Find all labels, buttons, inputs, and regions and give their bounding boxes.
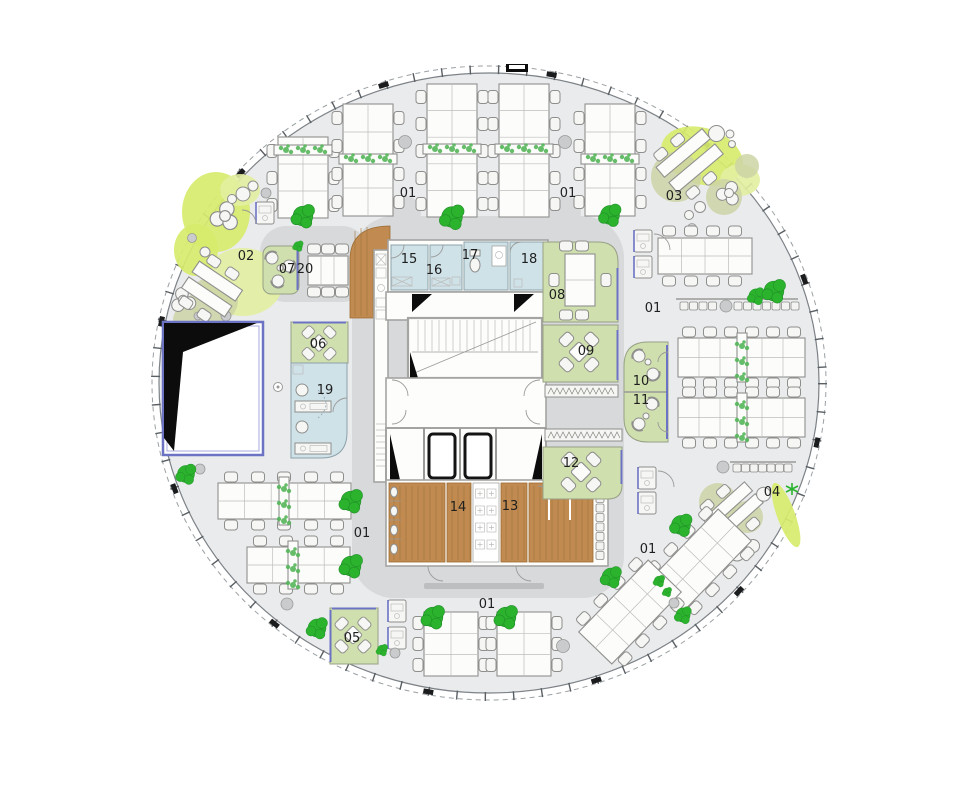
coat-rack — [545, 429, 622, 441]
sink-block — [473, 483, 499, 562]
room-label-13: 13 — [502, 499, 519, 514]
open-office-north — [267, 84, 646, 218]
room-19 — [291, 363, 347, 458]
room-label-18: 18 — [521, 252, 538, 267]
printer-station — [388, 600, 406, 658]
room-label-15: 15 — [401, 252, 418, 267]
room-label-07: 07 — [279, 262, 296, 277]
elevator-car — [465, 434, 491, 478]
stair-core — [386, 292, 546, 378]
desk-bench — [247, 536, 350, 594]
open-office-label-4: 01 — [479, 597, 496, 612]
open-office-label-3: 01 — [354, 526, 371, 541]
room-label-02: 02 — [238, 249, 255, 264]
room-label-05: 05 — [344, 631, 361, 646]
room-label-10: 10 — [633, 374, 650, 389]
open-office-label-0: 01 — [400, 186, 417, 201]
room-label-12: 12 — [563, 456, 580, 471]
desk-bench — [574, 104, 646, 216]
column-marker-dot — [277, 386, 280, 389]
room-08 — [543, 241, 618, 322]
room-12 — [543, 429, 622, 499]
stool — [557, 640, 570, 653]
open-office-label-2: 01 — [645, 301, 662, 316]
floor-plan-canvas: 01 01 01 01 01 01 02 03 04 05 06 07 20 0… — [0, 0, 958, 806]
rooms-10-11 — [624, 342, 668, 442]
open-office-label-5: 01 — [640, 542, 657, 557]
desk-bench — [416, 84, 488, 217]
stool — [195, 464, 205, 474]
desk-bench — [488, 84, 560, 217]
room-label-14: 14 — [450, 500, 467, 515]
stool — [281, 598, 293, 610]
room-label-19: 19 — [317, 383, 334, 398]
room-label-08: 08 — [549, 288, 566, 303]
room-label-20: 20 — [297, 262, 314, 277]
room-label-06: 06 — [310, 337, 327, 352]
room-label-09: 09 — [578, 344, 595, 359]
open-office-label-1: 01 — [560, 186, 577, 201]
coat-rack — [545, 385, 618, 397]
room-09 — [543, 325, 618, 397]
room-label-03: 03 — [666, 189, 683, 204]
atrium-void — [163, 322, 263, 455]
desk-bench — [332, 104, 404, 216]
stool — [669, 598, 679, 608]
elevator-bank — [386, 428, 546, 484]
room-label-16: 16 — [426, 263, 443, 278]
stool — [399, 136, 412, 149]
stool — [559, 136, 572, 149]
elevator-lobby — [386, 378, 546, 428]
elevator-car — [429, 434, 455, 478]
room-label-11: 11 — [633, 393, 650, 408]
room-label-17: 17 — [462, 248, 479, 263]
room-label-04: 04 — [764, 485, 781, 500]
meeting-table-20 — [308, 244, 349, 297]
